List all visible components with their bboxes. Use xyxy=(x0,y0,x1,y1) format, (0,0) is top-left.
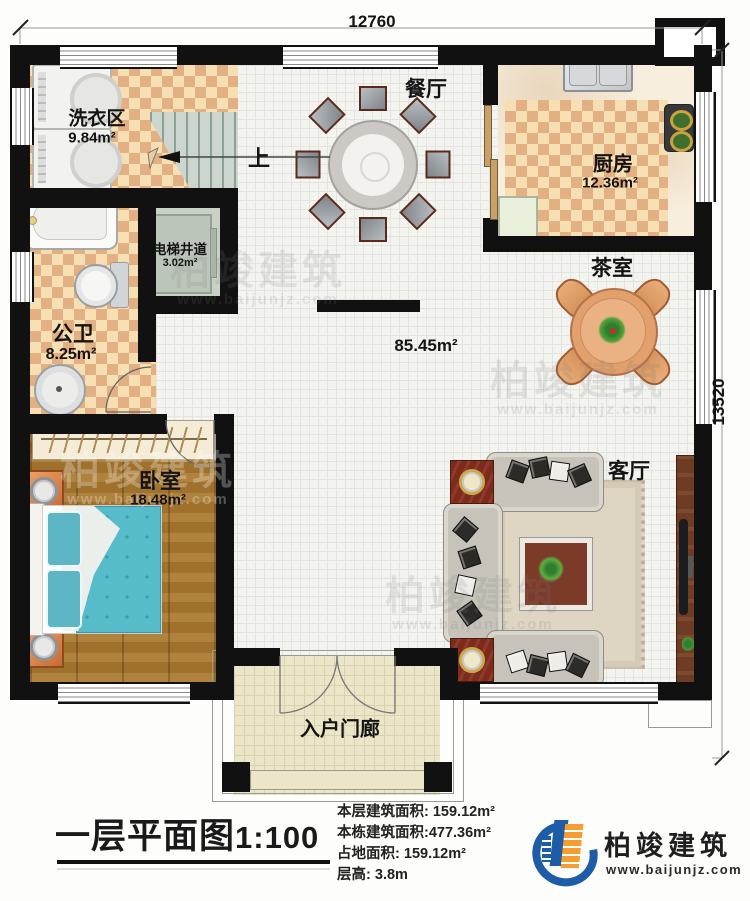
wall xyxy=(394,648,440,666)
window xyxy=(283,45,438,69)
wall xyxy=(234,648,280,666)
window xyxy=(10,252,34,302)
wall xyxy=(177,45,283,65)
logo-url: www.baijunjz.com xyxy=(606,862,742,877)
drawing-scale: 1:100 xyxy=(235,820,319,855)
room-label-living: 客厅 xyxy=(608,455,650,485)
room-label-bedroom: 卧室 xyxy=(139,465,181,495)
window xyxy=(694,92,716,202)
watermark: 柏竣建筑 www.baijunjz.com xyxy=(490,360,666,418)
logo-icon xyxy=(530,814,596,884)
bed-pillow xyxy=(46,569,82,629)
wall xyxy=(483,236,712,252)
logo-name: 柏竣建筑 xyxy=(604,824,732,863)
dimension-top: 12760 xyxy=(348,12,395,32)
build-stats: 本层建筑面积: 159.12m² 本栋建筑面积:477.36m² 占地面积: 1… xyxy=(337,802,495,886)
room-label-bathroom: 公卫 xyxy=(52,318,94,348)
room-area-bathroom: 8.25m² xyxy=(46,346,97,364)
window xyxy=(10,88,34,145)
side-table xyxy=(450,460,494,504)
window xyxy=(480,682,658,704)
hall-area-label: 85.45m² xyxy=(394,336,457,356)
bed-pillow xyxy=(46,511,82,567)
stat-row: 层高: 3.8m xyxy=(337,865,495,886)
stat-row: 本栋建筑面积:477.36m² xyxy=(337,823,495,844)
title-underline xyxy=(57,860,330,864)
drawing-title: 一层平面图1:100 xyxy=(55,808,319,859)
stat-row: 本层建筑面积: 159.12m² xyxy=(337,802,495,823)
refrigerator xyxy=(498,196,538,240)
dining-chair xyxy=(359,217,387,242)
wall xyxy=(10,682,58,700)
room-label-kitchen: 厨房 xyxy=(593,148,633,177)
dining-chair xyxy=(296,151,321,179)
chimney xyxy=(655,18,725,66)
floor-plan-page: 柏竣建筑 www.baijunjz.com 柏竣建筑 www.baijunjz.… xyxy=(0,0,750,901)
wall xyxy=(658,682,712,700)
wall xyxy=(694,45,712,92)
dining-chair xyxy=(426,151,451,179)
wall xyxy=(10,302,30,700)
dimension-right: 13520 xyxy=(709,378,729,425)
wall xyxy=(10,188,238,208)
company-logo: 柏竣建筑 www.baijunjz.com xyxy=(530,810,745,894)
wall xyxy=(694,424,712,700)
window xyxy=(58,682,190,704)
bed xyxy=(26,503,160,634)
dining-table xyxy=(328,120,418,210)
footer: 一层平面图1:100 本层建筑面积: 159.12m² 本栋建筑面积:477.3… xyxy=(0,800,750,901)
porch-pillar-right xyxy=(424,762,452,792)
sliding-door xyxy=(484,105,497,218)
room-area-kitchen: 12.36m² xyxy=(582,175,638,192)
title-underline-shadow xyxy=(57,868,330,870)
stairs-up-label: 上 xyxy=(248,141,270,173)
cabinet-plant xyxy=(682,636,694,652)
toilet-bowl xyxy=(74,264,118,308)
window xyxy=(60,45,177,69)
porch-step-band xyxy=(250,770,426,790)
wall xyxy=(10,414,167,434)
room-label-laundry: 洗衣区 xyxy=(68,104,125,131)
bathroom-sink xyxy=(34,364,86,416)
wall xyxy=(10,45,30,88)
room-label-tea: 茶室 xyxy=(591,252,633,282)
room-area-elevator: 3.02m² xyxy=(163,257,198,269)
room-area-laundry: 9.84m² xyxy=(68,130,116,147)
tv xyxy=(679,519,688,615)
wall xyxy=(440,648,458,700)
exterior-pad xyxy=(648,700,712,728)
room-label-dining: 餐厅 xyxy=(405,73,447,103)
wall xyxy=(138,188,156,362)
porch-pillar-left xyxy=(222,762,250,792)
room-label-porch: 入户门廊 xyxy=(300,713,380,742)
gas-stove xyxy=(664,104,694,152)
watermark: 柏竣建筑 www.baijunjz.com xyxy=(385,575,561,633)
dining-chair xyxy=(359,86,387,111)
room-label-elevator: 电梯井道 xyxy=(153,238,207,258)
drawing-title-text: 一层平面图 xyxy=(55,817,235,856)
stat-row: 占地面积: 159.12m² xyxy=(337,844,495,865)
room-area-bedroom: 18.48m² xyxy=(130,492,186,509)
wall xyxy=(483,45,498,105)
